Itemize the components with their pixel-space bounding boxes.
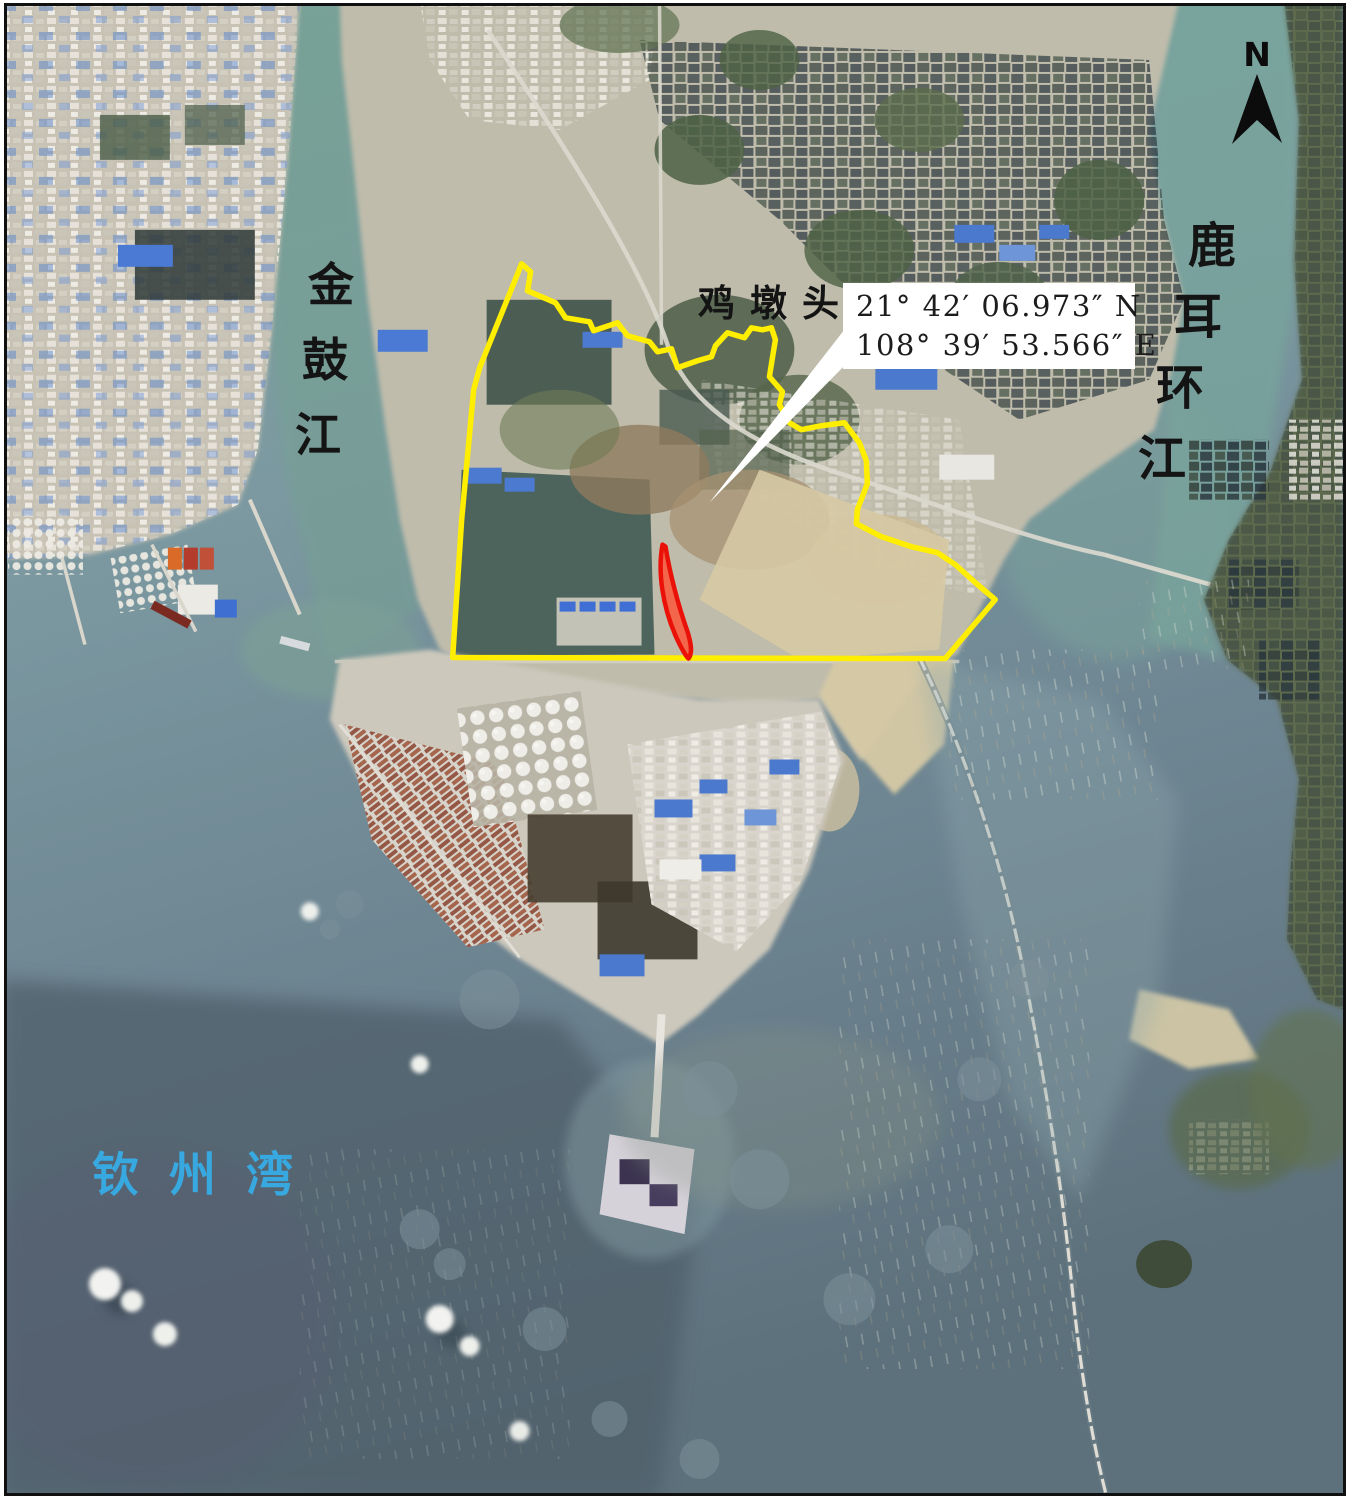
- callout-longitude: 108° 39′ 53.566″ E: [856, 326, 1135, 365]
- label-river-jingujiang: 金鼓江: [308, 262, 354, 487]
- north-label: N: [1225, 38, 1289, 72]
- satellite-basemap: [7, 6, 1343, 1493]
- label-river-luerhuanjiang: 鹿耳环江: [1188, 222, 1236, 506]
- label-place-jiduntou: 鸡墩头: [698, 273, 854, 327]
- north-arrow-icon: [1225, 72, 1289, 146]
- map-frame: 21° 42′ 06.973″ N 108° 39′ 53.566″ E N 金…: [4, 3, 1346, 1496]
- north-arrow: N: [1225, 38, 1289, 150]
- callout-latitude: 21° 42′ 06.973″ N: [856, 287, 1135, 326]
- coordinate-callout: 21° 42′ 06.973″ N 108° 39′ 53.566″ E: [843, 283, 1135, 369]
- label-bay-qinzhouwan: 钦州湾: [92, 1136, 323, 1205]
